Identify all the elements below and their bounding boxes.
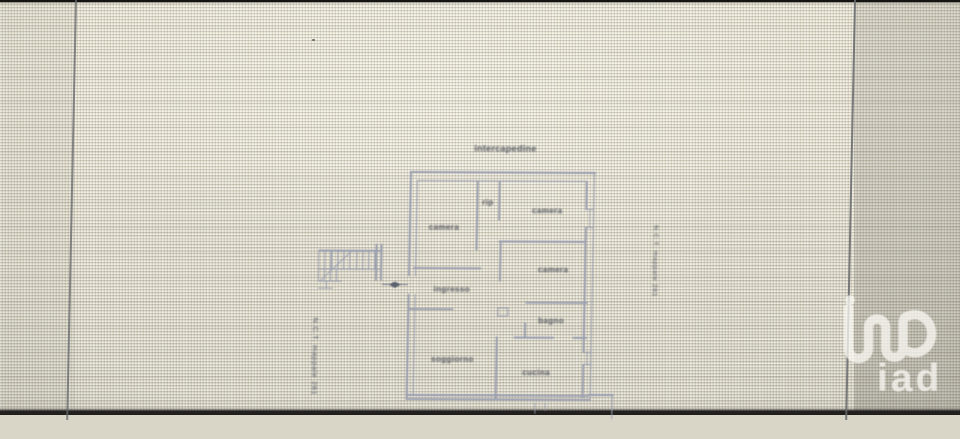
svg-text:iad: iad [877, 357, 942, 400]
